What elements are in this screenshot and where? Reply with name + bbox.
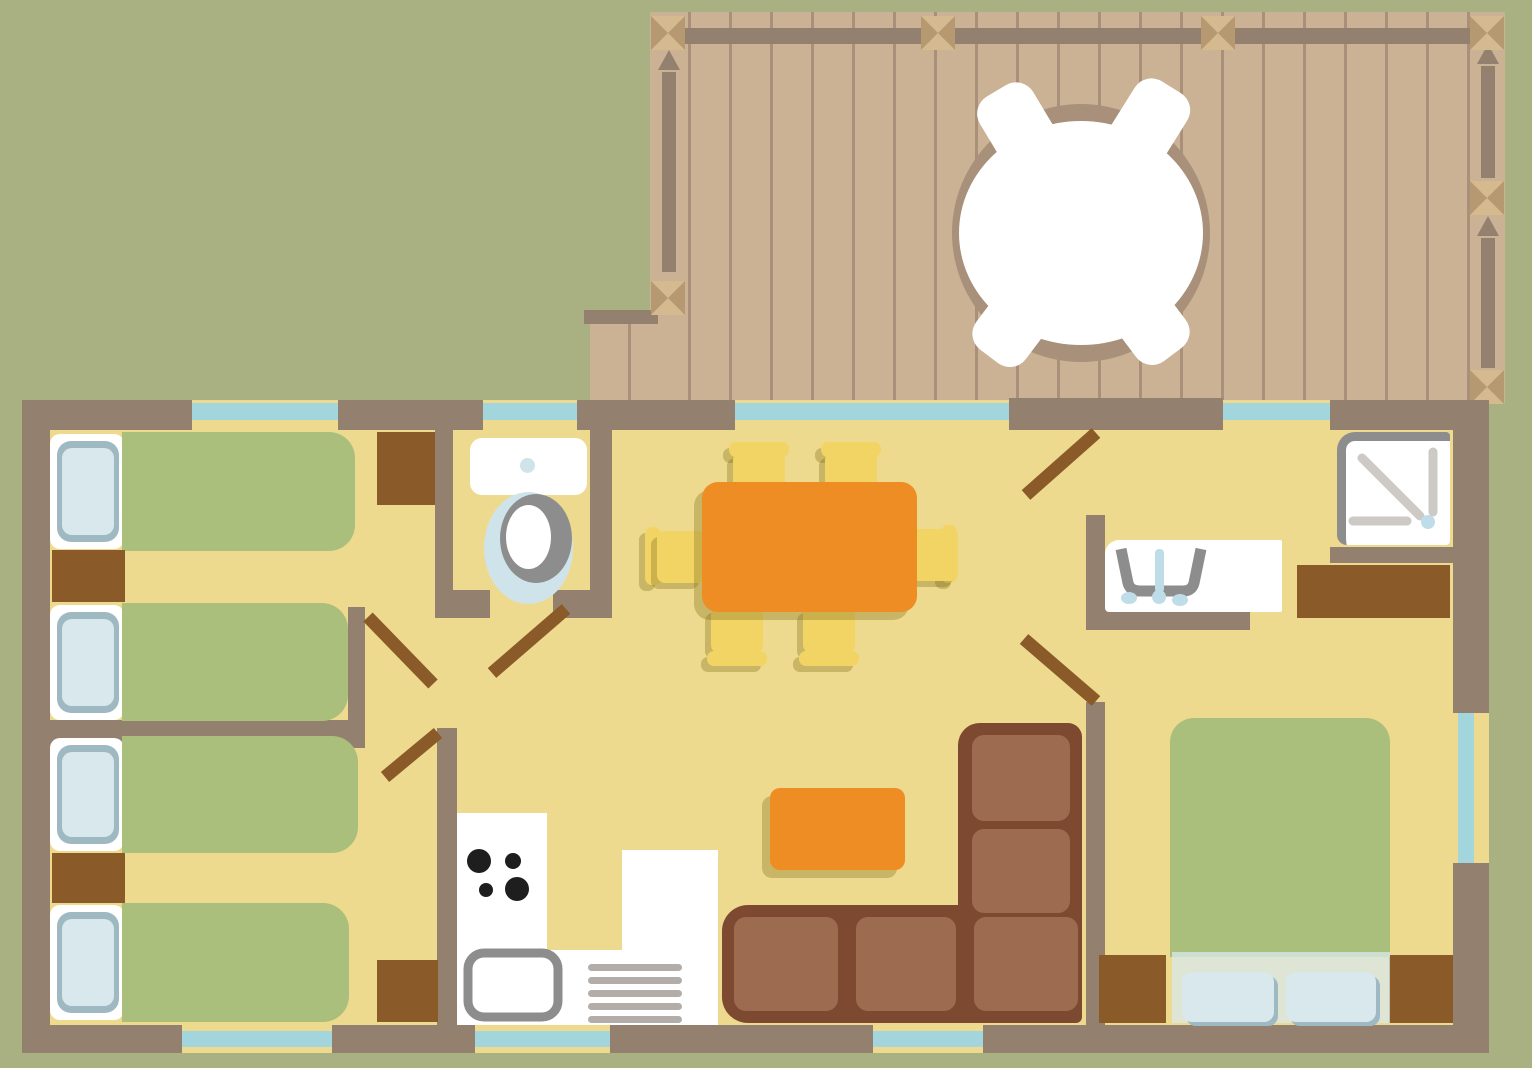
shower-drain-diagonal (1362, 458, 1420, 516)
floor-plan-canvas (0, 0, 1532, 1068)
detail-overlay (0, 0, 1532, 1068)
door-swing-bedroom2 (385, 733, 438, 777)
dish-drainer-bar (588, 1016, 682, 1023)
dish-drainer-bar (588, 1003, 682, 1010)
kitchen-sink (468, 953, 558, 1017)
stove-burner (505, 877, 529, 901)
dish-drainer-bar (588, 964, 682, 971)
dish-drainer-bar (588, 977, 682, 984)
stove-burner (505, 853, 521, 869)
dish-drainer-bar (588, 990, 682, 997)
stove-burner (479, 883, 493, 897)
shower-drain-hole (1421, 515, 1435, 529)
door-swing-wc (492, 609, 566, 673)
washbasin-soap (1121, 592, 1137, 604)
washbasin-soap (1172, 594, 1188, 606)
door-swing-bedroom3 (1024, 639, 1096, 701)
deck-round-table (959, 121, 1203, 345)
door-swing-bedroom1 (368, 617, 433, 684)
stove-burner (467, 849, 491, 873)
door-swing-shower-room (1026, 433, 1096, 495)
washbasin-drop (1152, 590, 1166, 604)
washbasin-faucet (1155, 549, 1164, 593)
